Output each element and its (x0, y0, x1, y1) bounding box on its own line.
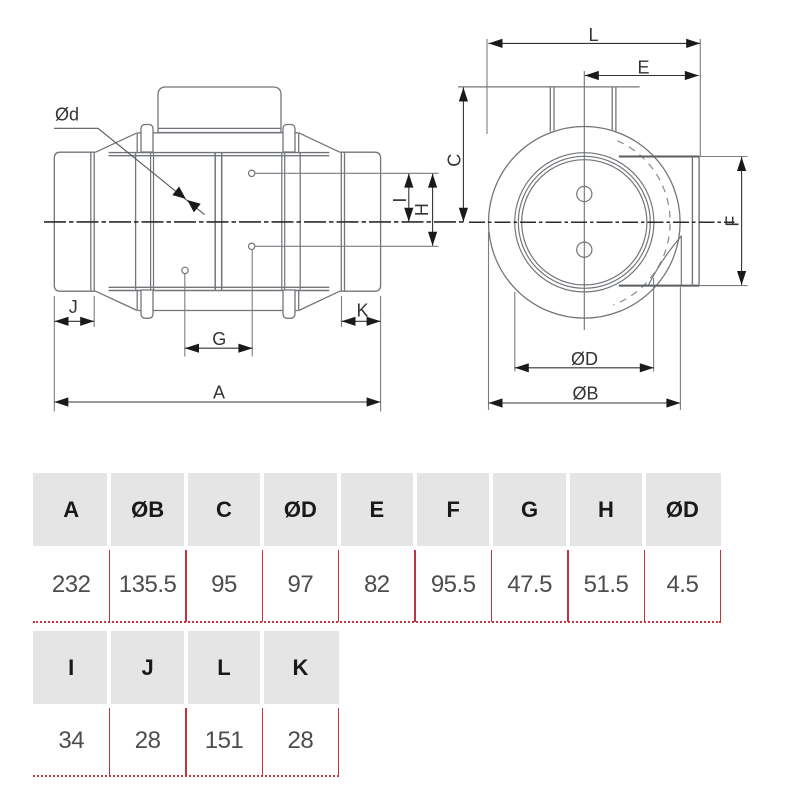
svg-text:A: A (213, 383, 225, 403)
svg-text:I: I (390, 198, 410, 203)
svg-text:K: K (356, 300, 368, 320)
svg-text:ØD: ØD (571, 349, 598, 369)
svg-text:C: C (445, 154, 465, 167)
svg-text:ØB: ØB (572, 383, 598, 403)
svg-text:L: L (588, 25, 598, 45)
svg-text:H: H (412, 203, 432, 216)
svg-text:F: F (722, 216, 742, 227)
svg-text:G: G (212, 329, 226, 349)
svg-text:E: E (637, 57, 649, 77)
svg-text:Ød: Ød (55, 105, 79, 125)
svg-text:J: J (69, 297, 78, 317)
